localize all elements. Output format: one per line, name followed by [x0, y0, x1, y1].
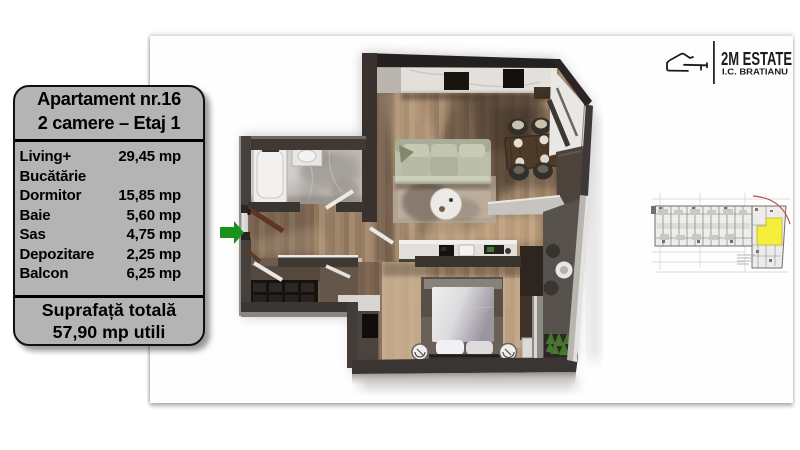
svg-text:I.C. BRATIANU: I.C. BRATIANU — [722, 67, 788, 77]
